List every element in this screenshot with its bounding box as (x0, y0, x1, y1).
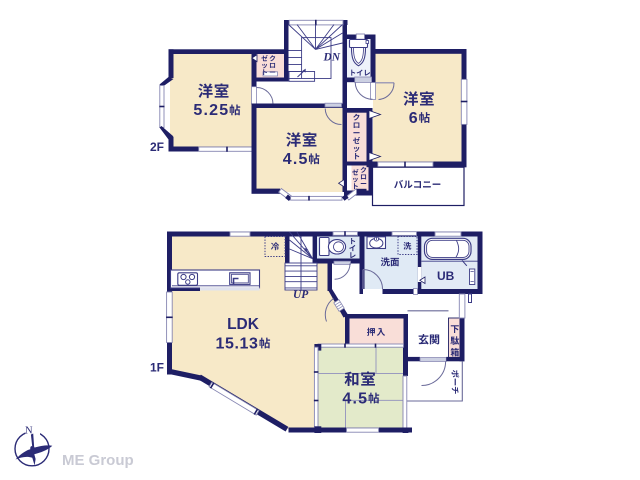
svg-text:6: 6 (409, 110, 419, 127)
svg-text:DN: DN (323, 52, 341, 64)
svg-text:1F: 1F (150, 361, 164, 375)
svg-text:4.5: 4.5 (342, 390, 368, 407)
svg-text:ME Group: ME Group (62, 452, 134, 469)
svg-text:N: N (25, 426, 33, 437)
svg-text:15.13: 15.13 (216, 335, 259, 352)
svg-text:UB: UB (437, 269, 455, 283)
svg-text:4.5: 4.5 (283, 151, 309, 168)
svg-text:LDK: LDK (227, 316, 260, 333)
svg-text:UP: UP (293, 289, 309, 301)
svg-text:5.25: 5.25 (193, 102, 229, 119)
svg-text:2F: 2F (150, 140, 164, 154)
